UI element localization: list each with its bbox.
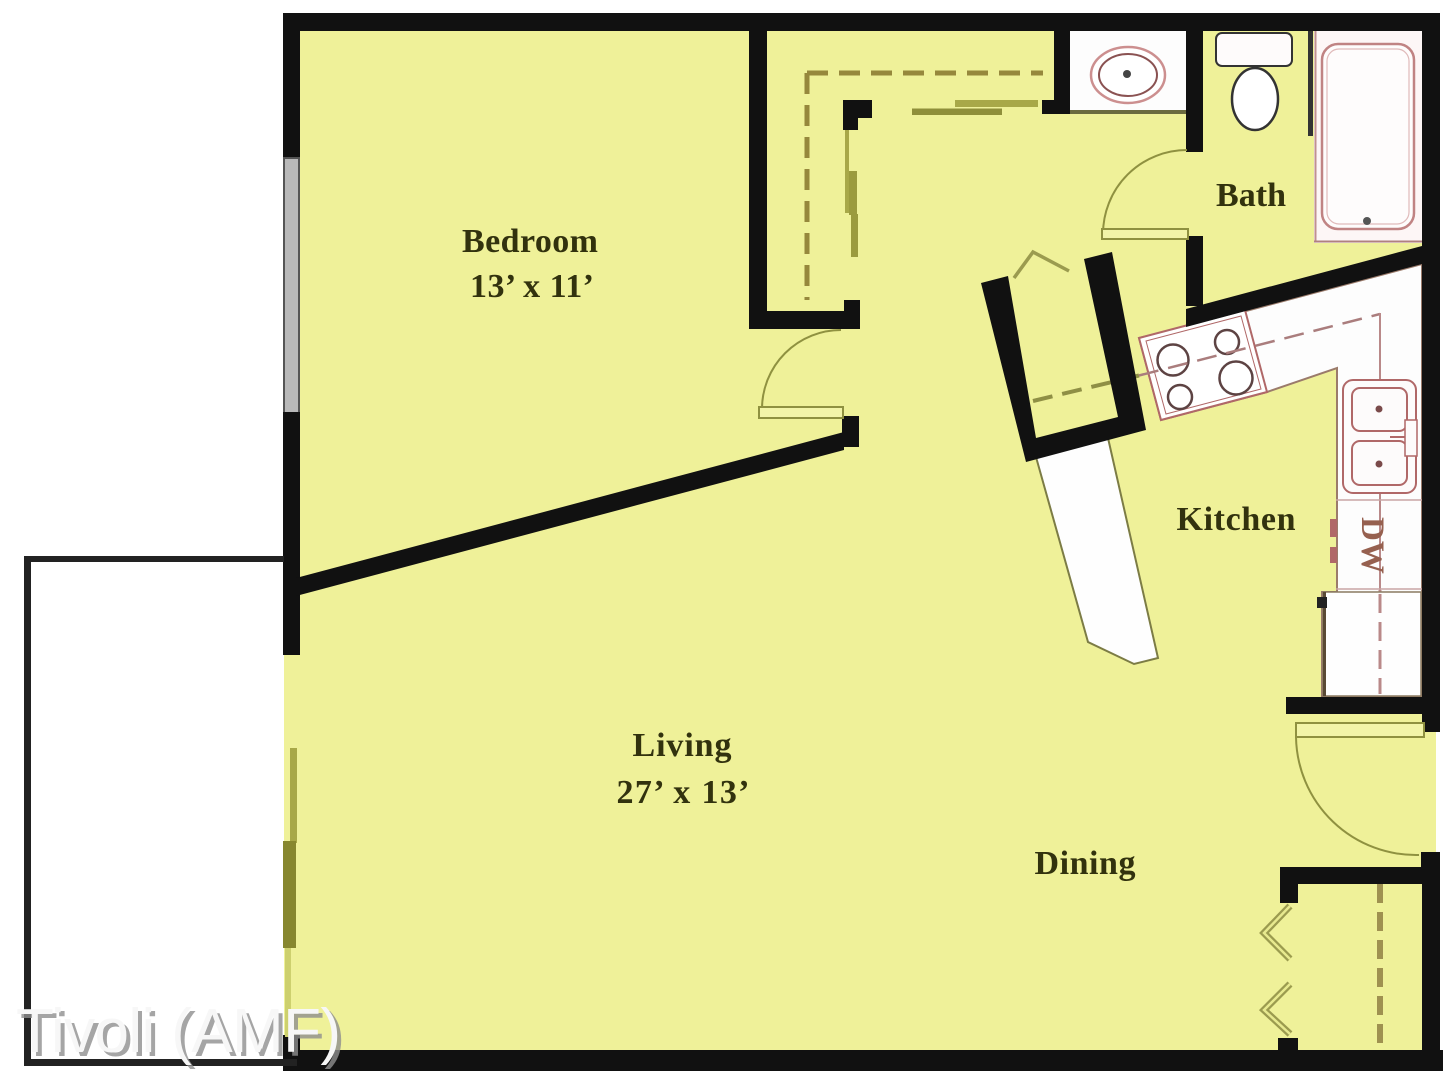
svg-text:Kitchen: Kitchen (1177, 501, 1296, 538)
svg-text:27’ x 13’: 27’ x 13’ (617, 774, 750, 811)
svg-text:Living: Living (633, 727, 732, 764)
svg-text:Tivoli (AMF): Tivoli (AMF) (16, 997, 341, 1066)
svg-text:13’ x 11’: 13’ x 11’ (470, 268, 594, 305)
svg-text:Bath: Bath (1216, 177, 1286, 214)
svg-text:DW: DW (1354, 517, 1390, 574)
svg-text:Dining: Dining (1035, 845, 1136, 882)
svg-text:Bedroom: Bedroom (462, 223, 598, 260)
